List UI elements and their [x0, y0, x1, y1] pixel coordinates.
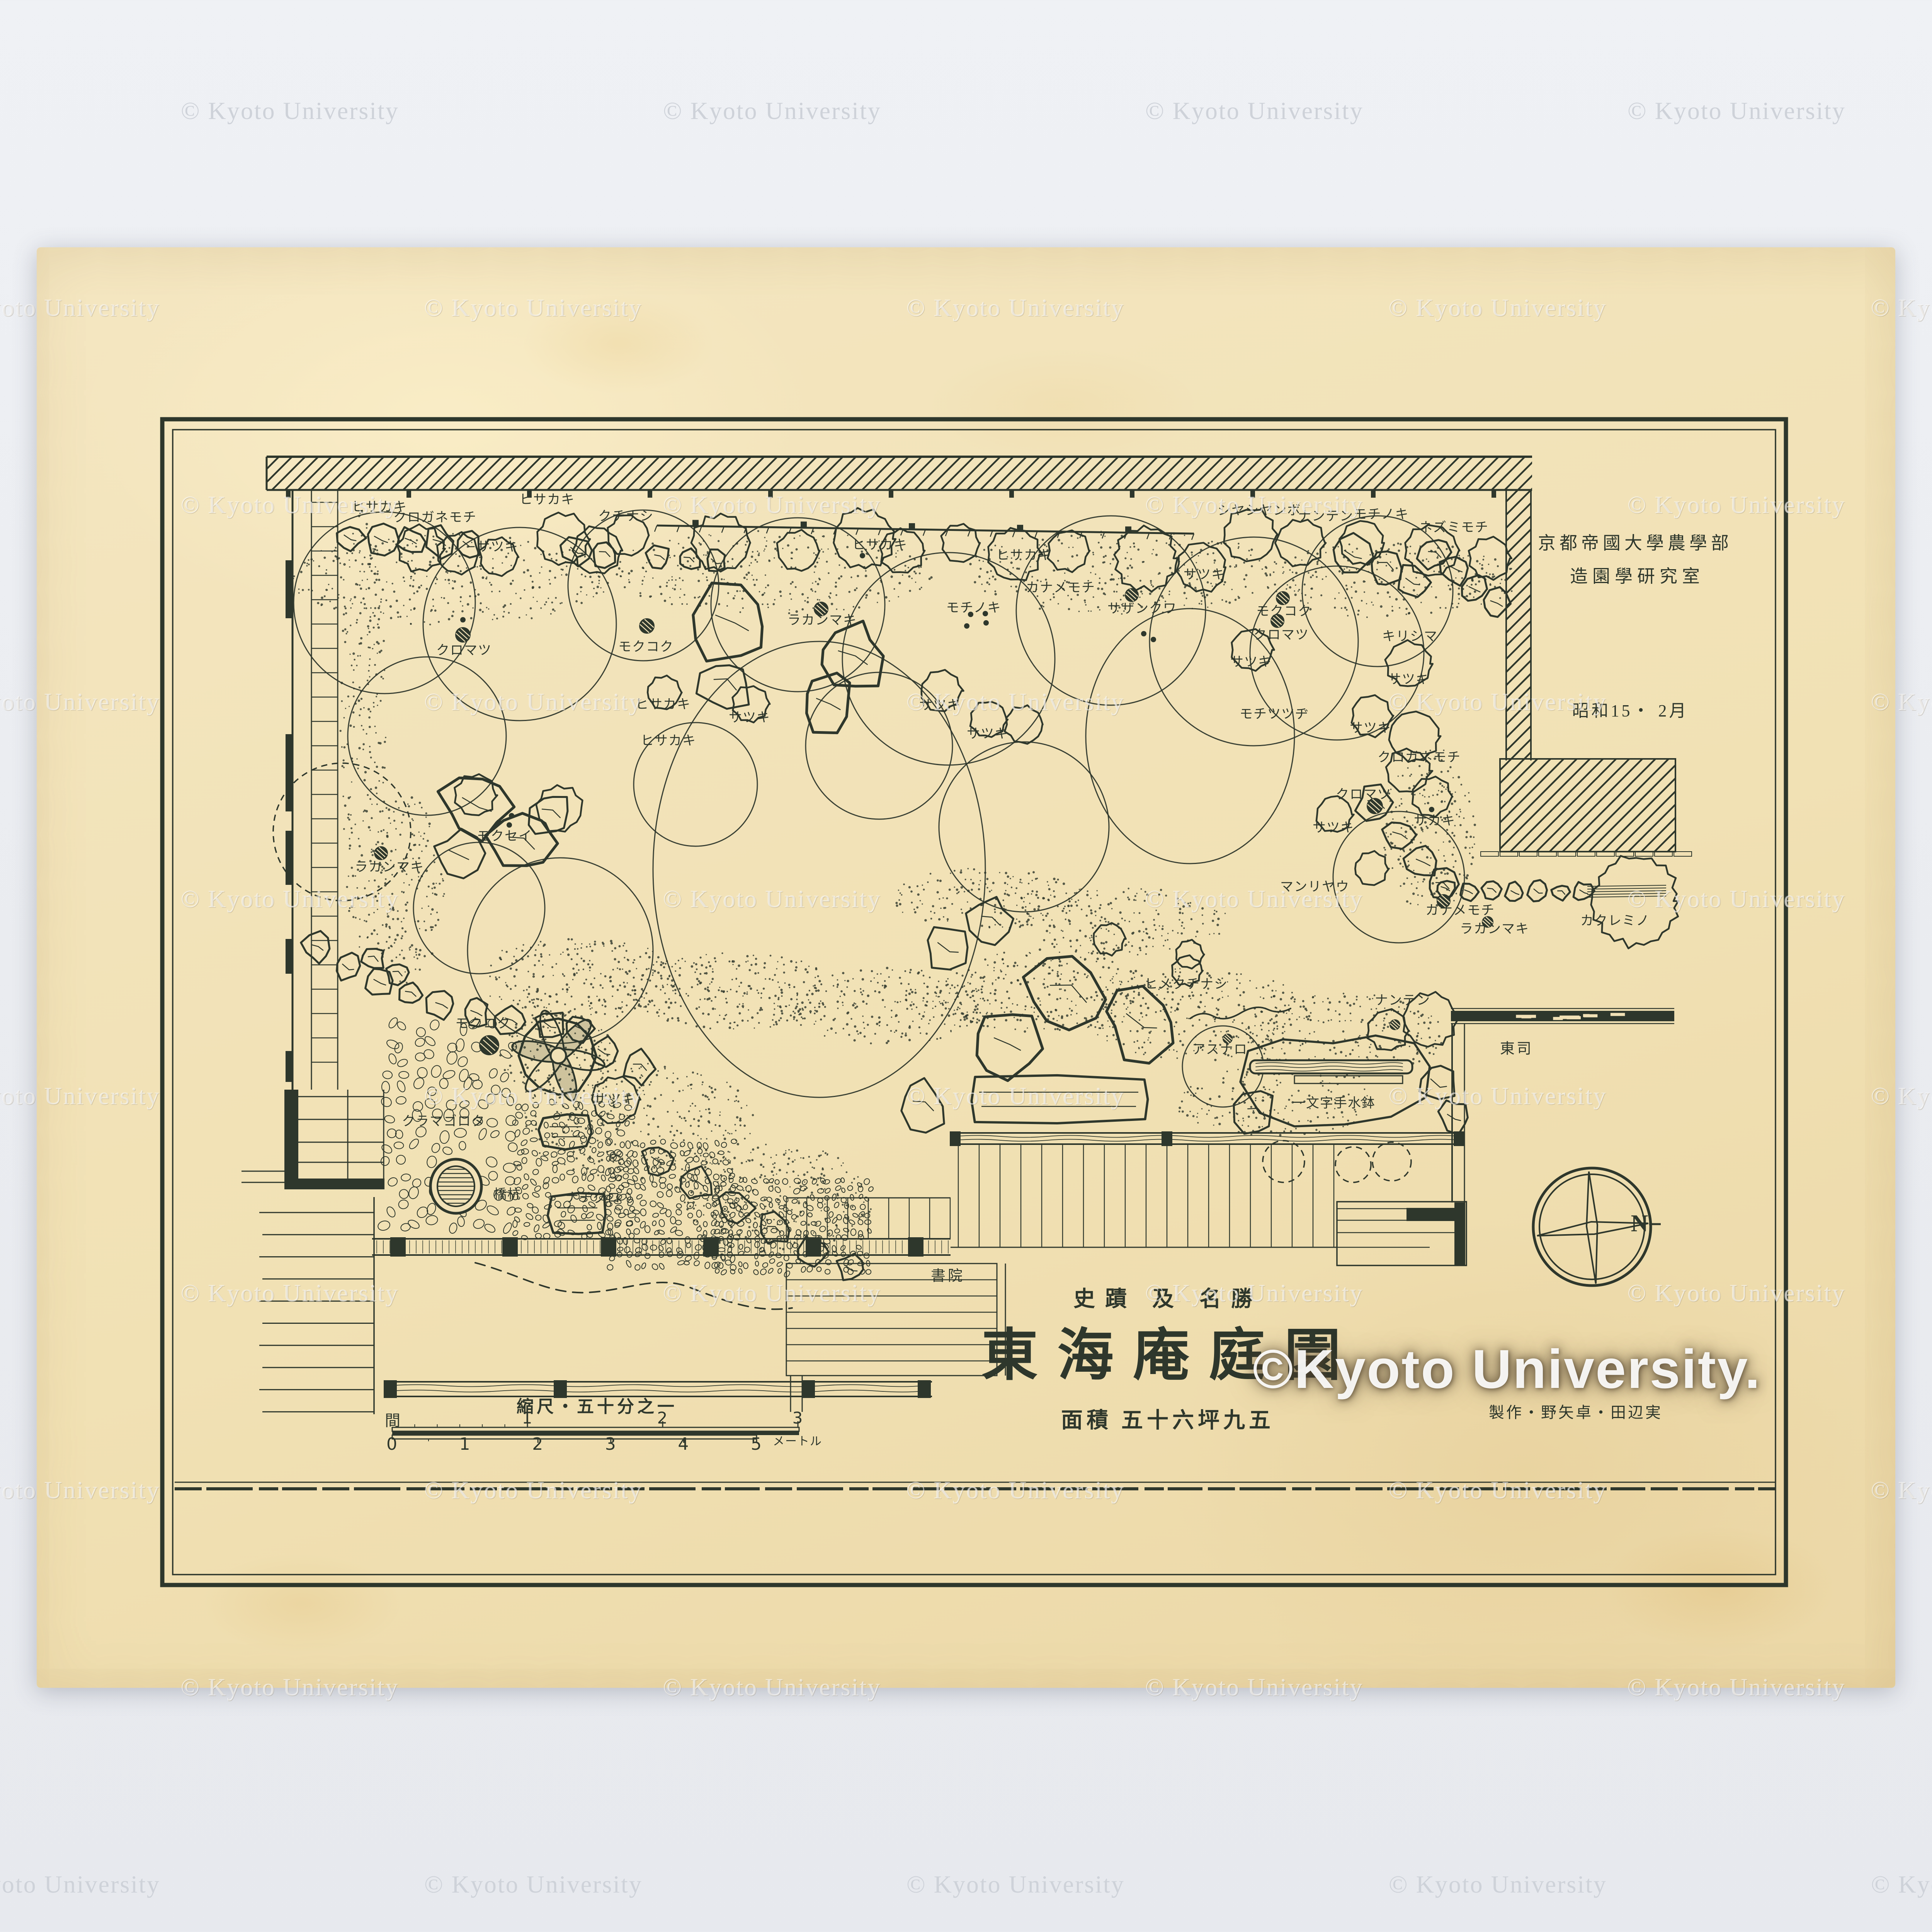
- buildings: [175, 490, 1776, 1489]
- plant-label: モチツツヂ: [1240, 706, 1309, 722]
- plant-label: モクコク: [455, 1016, 511, 1031]
- plant-label: ナンテン: [1298, 509, 1354, 524]
- plant-label: クロマツ: [436, 643, 492, 658]
- plant-label: クラマゴロタ: [402, 1114, 485, 1129]
- plant-label: クロマツ: [1253, 627, 1309, 643]
- plant-label: モクコク: [618, 639, 674, 655]
- plant-label: サツキ: [967, 726, 1009, 742]
- plant-label: ラカンマキ: [355, 859, 424, 875]
- plant-label: モクセイ: [477, 828, 532, 844]
- tosu-room-label: 東司: [1500, 1037, 1533, 1058]
- date-label: 昭和15・ 2月: [1572, 697, 1689, 721]
- credits-line: 製作・野矢卓・田辺実: [1489, 1400, 1663, 1422]
- university-line2: 造園學研究室: [1570, 562, 1704, 588]
- plant-label: クロガネモチ: [393, 510, 477, 525]
- title-superscript: 史蹟 及 名勝: [1073, 1282, 1263, 1313]
- plant-label: サツキ: [729, 710, 770, 725]
- university-line1: 京都帝國大學農學部: [1538, 529, 1733, 554]
- tree-trunks: [374, 553, 1493, 1055]
- plant-label: サツキ: [594, 1092, 635, 1107]
- plant-label: サザンクワ: [1107, 601, 1177, 616]
- plant-label: ナンテン: [1375, 993, 1430, 1008]
- plant-label: サツキ: [1184, 567, 1225, 582]
- plant-label: サツキ: [1313, 820, 1354, 835]
- garden-plan-drawing: 間123012345メートルヒサカキヒサカキクロガネモチクチナシサツキクロマツモ…: [0, 0, 1932, 1932]
- plant-label: ヒサカキ: [852, 537, 908, 553]
- plant-label: サツキ: [1230, 654, 1272, 670]
- plant-label: サツキ: [919, 697, 961, 713]
- plant-label: カナメモチ: [1425, 903, 1495, 918]
- plant-label: ヒメクチナシ: [1145, 976, 1228, 992]
- plant-label: ヒサカキ: [641, 733, 696, 748]
- plant-label: モチノキ: [1354, 507, 1409, 522]
- plant-label: ナチグロ: [565, 1190, 621, 1206]
- plant-labels: ヒサカキヒサカキクロガネモチクチナシサツキクロマツモクコクヒサカキヒサカキヒサカ…: [352, 492, 1650, 1206]
- scanned-garden-plan: { "page": { "watermark": "© Kyoto Univer…: [0, 0, 1932, 1932]
- plant-label: シヤシヤンボ: [1218, 503, 1301, 518]
- plant-label: カクレミノ: [1580, 913, 1650, 929]
- plant-label: モチノキ: [946, 600, 1002, 616]
- plant-label: ヒサカキ: [996, 548, 1052, 563]
- plant-label: ヒサカキ: [519, 492, 575, 507]
- plant-label: クロガネモチ: [1378, 750, 1461, 765]
- compass-north-label: N: [1631, 1210, 1648, 1238]
- plant-label: サツキ: [1388, 672, 1430, 687]
- scale-caption: 縮尺・五十分之一: [517, 1393, 677, 1417]
- plant-label: サツキ: [477, 539, 519, 554]
- plant-label: マンリヤウ: [1280, 879, 1350, 895]
- shoin-room-label: 書院: [931, 1264, 965, 1285]
- plant-label: ヒサカキ: [635, 697, 691, 712]
- plant-label: カナメモチ: [1026, 580, 1095, 595]
- plant-label: キリシマ: [1382, 629, 1438, 644]
- plant-label: サツキ: [1350, 720, 1391, 736]
- plant-label: ラカンマキ: [1460, 921, 1529, 937]
- plant-label: アスナロ: [1192, 1042, 1248, 1057]
- page-title: 東海庵庭園: [981, 1310, 1360, 1391]
- area-line: 面積 五十六坪九五: [1061, 1403, 1274, 1434]
- plant-label: ラカンマキ: [787, 612, 857, 628]
- plant-label: モクコク: [1256, 604, 1312, 619]
- plant-label: ネズミモチ: [1419, 520, 1489, 535]
- plant-label: サカキ: [1414, 813, 1456, 828]
- plant-label: 一文字手水鉢: [1292, 1095, 1376, 1111]
- garden-fence: [655, 520, 1194, 540]
- plant-label: 橋杭: [493, 1187, 521, 1202]
- plant-label: クチナシ: [598, 509, 654, 524]
- plant-label: クロマツ: [1336, 787, 1391, 802]
